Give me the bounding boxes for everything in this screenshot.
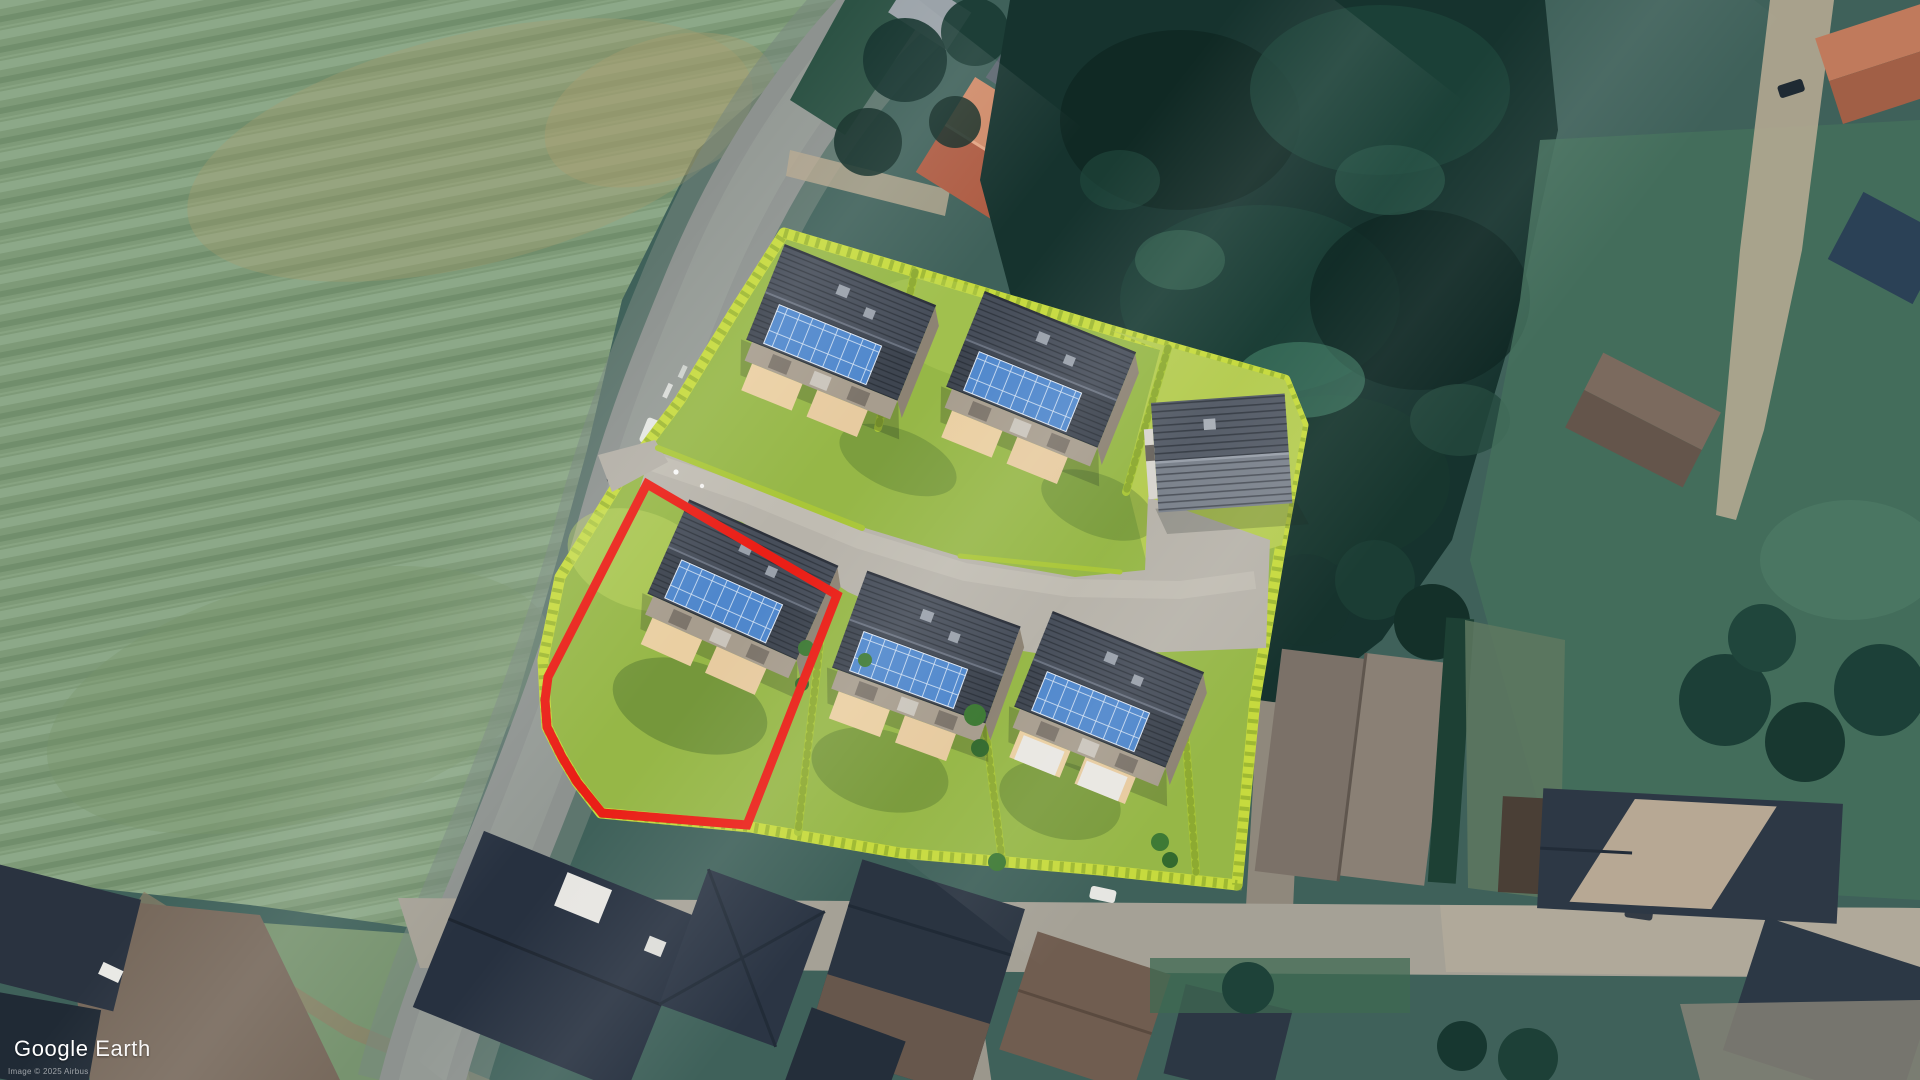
map-canvas[interactable] — [0, 0, 1920, 1080]
imagery-attribution: Image © 2025 Airbus — [8, 1067, 89, 1076]
google-earth-logo: Google Earth — [14, 1036, 151, 1062]
estate-north-of-street — [1497, 786, 1843, 924]
logo-word-earth: Earth — [95, 1036, 151, 1061]
google-earth-viewport: Google Earth Image © 2025 Airbus — [0, 0, 1920, 1080]
logo-word-google: Google — [14, 1036, 89, 1061]
